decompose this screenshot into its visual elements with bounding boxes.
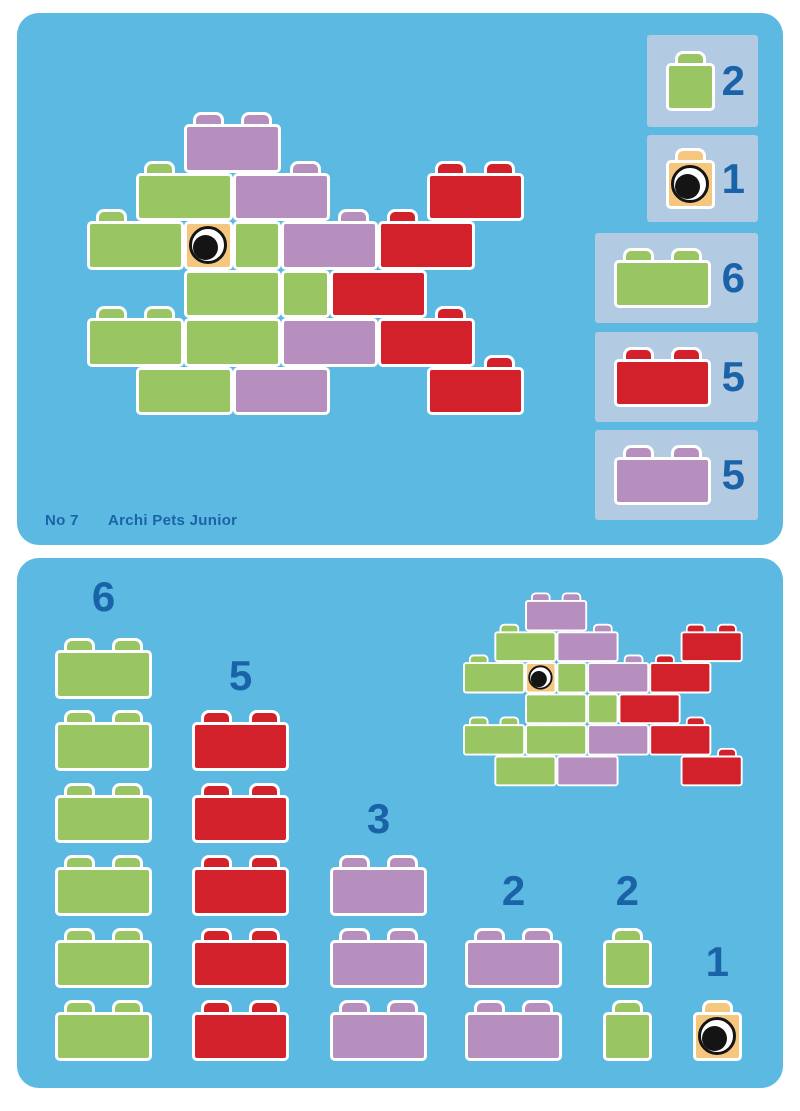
brick-body [192, 867, 289, 916]
purple-2x1-brick [330, 855, 427, 916]
brick-body [427, 173, 524, 222]
green-2x1-brick [55, 928, 152, 989]
red-2x1-brick [680, 623, 742, 662]
brick-body [192, 795, 289, 844]
green-2x1-brick [463, 716, 525, 755]
legend-count: 6 [722, 257, 745, 299]
parts-panel: 653221 [17, 558, 783, 1088]
googly-eye-pupil [193, 235, 218, 260]
brick-body [680, 755, 742, 786]
red-2x1-brick [192, 783, 289, 844]
brick-body [87, 318, 184, 367]
brick-body [378, 221, 475, 270]
green-1x1-brick [603, 928, 652, 989]
part-count-label: 1 [657, 941, 777, 983]
green-2x1-brick [87, 306, 184, 367]
purple-2x1-brick [465, 928, 562, 989]
brick-body [587, 693, 618, 724]
activity-card: 21655 No 7 Archi Pets Junior 653221 [0, 0, 800, 1111]
brick-body [649, 724, 711, 755]
legend-item: 1 [647, 135, 758, 222]
brick-body [463, 724, 525, 755]
fish-model-large [87, 124, 524, 415]
brick-body [192, 722, 289, 771]
brick-body [556, 755, 618, 786]
googly-eye-pupil [531, 671, 547, 687]
brick-body [184, 318, 281, 367]
brick-body [136, 173, 233, 222]
green-1x1-brick [666, 51, 715, 112]
purple-2x1-brick [614, 445, 711, 506]
red-2x1-brick [192, 928, 289, 989]
brick-body [556, 662, 587, 693]
brick-body [614, 359, 711, 408]
green-2x1-brick [55, 638, 152, 699]
legend-brick [666, 51, 715, 112]
brick-body [494, 631, 556, 662]
brick-body [55, 940, 152, 989]
brick-body [614, 457, 711, 506]
brick-body [184, 270, 281, 319]
brick-body [465, 1012, 562, 1061]
brick-body [192, 1012, 289, 1061]
red-2x1-brick [192, 710, 289, 771]
brick-body [525, 662, 556, 693]
brick-body [525, 600, 587, 631]
legend-item: 5 [595, 430, 758, 520]
card-number: No 7 [45, 513, 79, 528]
green-2x1-brick [55, 855, 152, 916]
purple-2x1-brick [465, 1000, 562, 1061]
googly-eye-pupil [702, 1026, 727, 1051]
legend-brick [666, 148, 715, 209]
brick-body [666, 63, 715, 112]
green-2x1-brick [55, 710, 152, 771]
brick-body [281, 270, 330, 319]
brick-body [192, 940, 289, 989]
brick-body [330, 940, 427, 989]
brick-body [618, 693, 680, 724]
legend-brick [614, 248, 711, 309]
legend-brick [614, 347, 711, 408]
part-count-label: 2 [454, 870, 574, 912]
googly-eye [671, 165, 709, 203]
legend-brick [614, 445, 711, 506]
brick-body [587, 724, 649, 755]
legend-item: 5 [595, 332, 758, 422]
part-count-label: 3 [319, 798, 439, 840]
legend-item: 2 [647, 35, 758, 127]
legend-count: 5 [722, 356, 745, 398]
purple-2x1-brick [330, 928, 427, 989]
red-2x1-brick [427, 161, 524, 222]
brick-body [693, 1012, 742, 1061]
brick-body [465, 940, 562, 989]
brick-body [281, 318, 378, 367]
green-2x1-brick [614, 248, 711, 309]
legend-count: 1 [722, 158, 745, 200]
brick-body [603, 1012, 652, 1061]
brick-body [55, 867, 152, 916]
brick-body [330, 1012, 427, 1061]
brick-body [666, 160, 715, 209]
red-2x1-brick [192, 1000, 289, 1061]
brick-body [184, 124, 281, 173]
brick-body [233, 221, 282, 270]
googly-eye [189, 226, 227, 264]
brick-body [463, 662, 525, 693]
fish-model-small [463, 600, 742, 786]
purple-2x1-brick [525, 592, 587, 631]
red-2x1-brick [192, 855, 289, 916]
red-2x1-brick [614, 347, 711, 408]
legend-count: 2 [722, 60, 745, 102]
brick-body [649, 662, 711, 693]
brick-body [525, 693, 587, 724]
model-panel: 21655 No 7 Archi Pets Junior [17, 13, 783, 545]
brick-body [55, 1012, 152, 1061]
brick-body [55, 722, 152, 771]
part-count-label: 2 [567, 870, 687, 912]
eye-brick [693, 1000, 742, 1061]
eye-brick [666, 148, 715, 209]
card-title: Archi Pets Junior [108, 513, 237, 528]
brick-body [136, 367, 233, 416]
brick-body [233, 367, 330, 416]
legend-item: 6 [595, 233, 758, 323]
brick-body [330, 867, 427, 916]
brick-body [494, 755, 556, 786]
part-count-label: 5 [181, 655, 301, 697]
brick-body [330, 270, 427, 319]
brick-body [281, 221, 378, 270]
brick-body [184, 221, 233, 270]
green-2x1-brick [55, 783, 152, 844]
brick-body [525, 724, 587, 755]
brick-body [378, 318, 475, 367]
purple-2x1-brick [184, 112, 281, 173]
brick-body [55, 650, 152, 699]
googly-eye [528, 665, 552, 689]
brick-body [87, 221, 184, 270]
part-count-label: 6 [44, 576, 164, 618]
legend-count: 5 [722, 454, 745, 496]
purple-2x1-brick [330, 1000, 427, 1061]
googly-eye [698, 1017, 736, 1055]
brick-body [603, 940, 652, 989]
googly-eye-pupil [675, 174, 700, 199]
brick-body [427, 367, 524, 416]
green-1x1-brick [603, 1000, 652, 1061]
brick-body [55, 795, 152, 844]
brick-body [614, 260, 711, 309]
brick-body [556, 631, 618, 662]
brick-body [233, 173, 330, 222]
green-2x1-brick [55, 1000, 152, 1061]
brick-body [680, 631, 742, 662]
brick-body [587, 662, 649, 693]
